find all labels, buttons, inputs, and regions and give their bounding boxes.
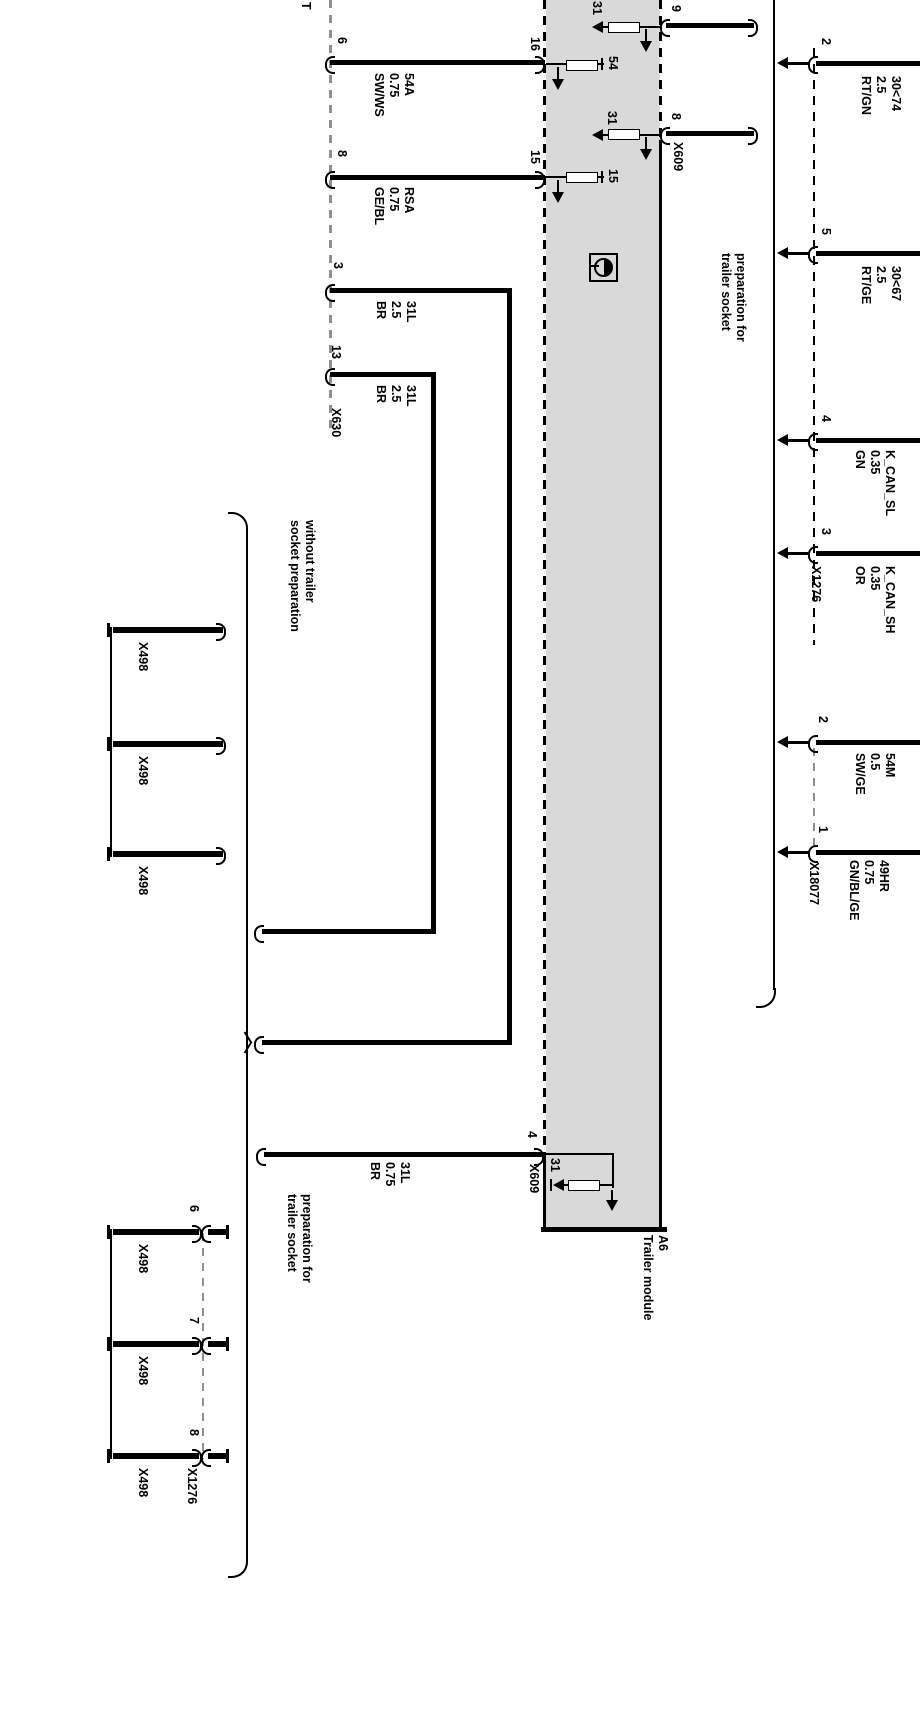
connector-label: X498 — [135, 756, 150, 785]
wire-label: 31L 2.5 BR — [373, 301, 418, 323]
fuse-symbol — [608, 129, 640, 140]
pin-number: 8 — [668, 113, 683, 120]
terminal-tick — [601, 171, 603, 183]
mate-stub — [208, 1229, 226, 1235]
x498-stub — [113, 741, 223, 747]
wire-30-67 — [816, 251, 920, 256]
fuse-symbol — [568, 1180, 600, 1191]
pin-number: 3 — [818, 528, 833, 535]
terminal-label: 54 — [605, 56, 620, 70]
wire-k-can-sh — [816, 551, 920, 556]
arrow-shaft — [788, 741, 810, 744]
arrow-left-icon — [777, 846, 788, 858]
arrow-left-icon — [592, 21, 603, 33]
terminal-label: 31 — [547, 1158, 562, 1172]
arrow-down-icon — [640, 41, 652, 52]
chain-line — [546, 1153, 614, 1155]
pin-number: 1 — [815, 826, 830, 833]
connector-arc-icon — [808, 56, 818, 74]
pin-number: 13 — [328, 345, 343, 359]
arrow-down-icon — [552, 79, 564, 90]
partial-wire-label: T — [298, 2, 313, 10]
arrow-shaft — [788, 439, 810, 442]
connector-label: X609 — [526, 1164, 541, 1193]
connector-label: X498 — [135, 866, 150, 895]
branch-line — [557, 180, 559, 192]
component-symbol-circle — [594, 258, 613, 277]
connector-label: X498 — [135, 1468, 150, 1497]
pin-number: 8 — [334, 150, 349, 157]
arrow-left-icon — [777, 434, 788, 446]
wire-49hr — [816, 850, 920, 855]
branch-line — [645, 137, 647, 149]
x498-stub — [113, 1453, 199, 1459]
arrow-left-icon — [777, 547, 788, 559]
connector-label: X609 — [670, 142, 685, 171]
pin-number: 2 — [815, 716, 830, 723]
pin-number: 4 — [818, 415, 833, 422]
connector-arc-icon — [325, 368, 335, 386]
wire-31l-pin4 — [264, 1152, 544, 1157]
pin-number: 7 — [186, 1317, 201, 1324]
arrow-left-icon — [553, 1179, 564, 1191]
pin-number: 3 — [330, 262, 345, 269]
branch-line — [645, 29, 647, 41]
stub-end-tick — [226, 1225, 229, 1239]
stub-end-tick — [107, 1449, 110, 1463]
pin-number: 9 — [668, 5, 683, 12]
arrow-down-icon — [640, 149, 652, 160]
wiring-diagram: A6 Trailer module 31 54 31 15 31 T 6 16 — [0, 0, 920, 1711]
stub-end-tick — [107, 1337, 110, 1351]
mate-stub — [208, 1341, 226, 1347]
wire-31l-a-vertical — [507, 288, 512, 1045]
connector-label: X630 — [328, 408, 343, 437]
wire-pin8-stub — [666, 131, 754, 136]
chain-line — [612, 1153, 614, 1188]
pin-number: 8 — [186, 1429, 201, 1436]
fuse-symbol — [566, 172, 598, 183]
connector-arc-icon — [216, 737, 226, 755]
wire-label: K_CAN_SL 0.35 GN — [852, 450, 897, 516]
connector-arc-icon — [254, 925, 264, 943]
arrow-left-icon — [592, 129, 603, 141]
x498-join-line — [110, 1229, 112, 1459]
wire-31l-a — [330, 288, 512, 293]
wire-31l-b — [330, 372, 436, 377]
pin-number: 6 — [334, 37, 349, 44]
wire-label: 31L 0.75 BR — [367, 1162, 412, 1186]
wire-label: 54A 0.75 SW/WS — [371, 73, 416, 117]
module-label: A6 Trailer module — [640, 1235, 670, 1320]
stub-end-tick — [226, 1337, 229, 1351]
component-symbol-line — [589, 265, 599, 267]
connector-label: X498 — [135, 1356, 150, 1385]
arrow-shaft — [788, 62, 810, 65]
arrow-shaft — [788, 851, 810, 854]
arrow-down-icon — [606, 1200, 618, 1211]
module-pin-number: 15 — [527, 150, 542, 164]
wire-label: 54M 0.5 SW/GE — [852, 753, 897, 795]
connector-arc-icon — [325, 284, 335, 302]
right-bracket-line — [773, 0, 775, 990]
options-bracket-top-hook — [228, 512, 248, 532]
right-bracket-hook — [756, 988, 776, 1008]
arrow-left-icon — [777, 736, 788, 748]
wire-label: K_CAN_SH 0.35 OR — [852, 566, 897, 633]
wire-label: 30<74 2.5 RT/GN — [858, 76, 903, 115]
connector-arc-icon — [748, 127, 758, 145]
fuse-symbol — [608, 22, 640, 33]
stub-end-tick — [107, 623, 110, 637]
arrow-shaft — [788, 552, 810, 555]
pin-number: 6 — [186, 1205, 201, 1212]
fuse-symbol — [566, 60, 598, 71]
module-bottom-edge — [541, 1227, 667, 1232]
wire-label: RSA 0.75 GE/BL — [371, 187, 416, 225]
options-bracket-notch — [244, 1041, 253, 1053]
stub-end-tick — [107, 847, 110, 861]
connector-arc-icon — [808, 735, 818, 753]
connector-arc-icon — [660, 19, 670, 37]
wire-31l-a-return — [262, 1040, 512, 1045]
connector-label: X1276 — [184, 1468, 199, 1504]
connector-arc-icon — [660, 127, 670, 145]
trailer-module-body — [546, 0, 660, 1227]
options-bracket-bottom-hook — [228, 1558, 248, 1578]
x498-stub — [113, 1341, 199, 1347]
note-preparation-right: preparation for trailer socket — [718, 253, 748, 342]
stub-end-tick — [226, 1449, 229, 1463]
connector-arc-icon — [808, 546, 818, 564]
connector-arc-icon — [808, 246, 818, 264]
x498-stub — [113, 1229, 199, 1235]
terminal-tick — [601, 58, 603, 70]
pin-number: 2 — [818, 38, 833, 45]
module-right-edge-solid — [659, 140, 662, 1227]
connector-arc-icon — [216, 847, 226, 865]
module-left-edge-solid — [543, 1157, 546, 1227]
stub-end-tick — [107, 737, 110, 751]
connector-arc-icon — [808, 433, 818, 451]
arrow-shaft — [788, 252, 810, 255]
arrow-left-icon — [777, 247, 788, 259]
pin-number: 4 — [524, 1131, 539, 1138]
connector-arc-icon — [325, 171, 335, 189]
connector-label: X498 — [135, 642, 150, 671]
x498-stub — [113, 627, 223, 633]
module-pin-number: 16 — [527, 37, 542, 51]
terminal-tick — [550, 1179, 552, 1191]
wire-31l-b-vertical — [431, 372, 436, 934]
component-symbol-icon — [589, 253, 618, 282]
arrow-down-icon — [552, 192, 564, 203]
wire-label: 49HR 0.75 GN/BL/GE — [846, 860, 891, 920]
stub-end-tick — [107, 1225, 110, 1239]
connector-arc-icon — [748, 19, 758, 37]
x498-stub — [113, 851, 223, 857]
connector-arc-icon — [256, 1148, 266, 1166]
note-preparation-left: preparation for trailer socket — [284, 1194, 314, 1283]
connector-arc-icon — [808, 845, 818, 863]
wire-k-can-sl — [816, 438, 920, 443]
terminal-label: 31 — [589, 1, 604, 15]
connector-arc-icon — [254, 1036, 264, 1054]
wire-label: 31L 2.5 BR — [373, 385, 418, 407]
wire-rsa — [330, 175, 545, 180]
wire-pin9-stub — [666, 23, 754, 28]
connector-label: X1276 — [808, 566, 823, 602]
mate-stub — [208, 1453, 226, 1459]
wire-31l-b-return — [262, 929, 436, 934]
wire-54m — [816, 740, 920, 745]
terminal-label: 31 — [604, 111, 619, 125]
note-without-preparation: without trailer socket preparation — [287, 520, 317, 632]
connector-label: X498 — [135, 1244, 150, 1273]
wire-label: 30<67 2.5 RT/GE — [858, 266, 903, 304]
x18077-connector-line — [813, 748, 815, 848]
connector-arc-icon — [325, 56, 335, 74]
wire-30-74 — [816, 61, 920, 66]
pin-number: 5 — [818, 228, 833, 235]
connector-label: X18077 — [806, 862, 821, 905]
branch-line — [557, 67, 559, 79]
arrow-left-icon — [777, 57, 788, 69]
wire-54a — [330, 60, 545, 65]
x498-join-line — [110, 627, 112, 857]
connector-arc-icon — [216, 623, 226, 641]
branch-line — [611, 1190, 613, 1200]
terminal-label: 15 — [605, 169, 620, 183]
